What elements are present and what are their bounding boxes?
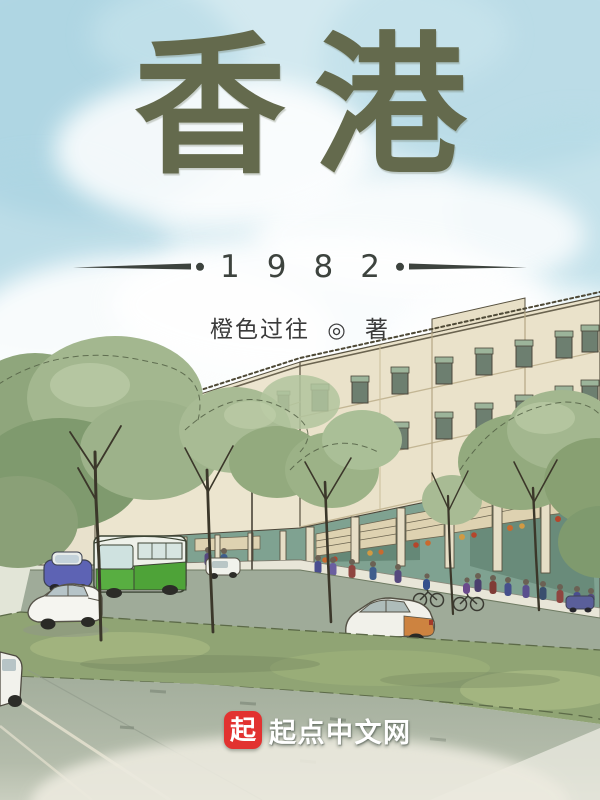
divider-left-icon	[73, 260, 207, 274]
author-separator-icon: ◎	[327, 319, 347, 342]
qidian-logo-icon: 起	[224, 711, 262, 749]
divider-right-icon	[393, 260, 527, 274]
green-bus	[94, 536, 186, 598]
book-year: 1982	[220, 249, 407, 285]
book-cover: 香港 1982 橙色过往 ◎ 著 起 起点中文网	[0, 0, 600, 800]
publisher-name: 起点中文网	[269, 711, 412, 750]
book-title: 香港	[0, 18, 600, 197]
author-byline: 橙色过往 ◎ 著	[0, 310, 600, 344]
author-name: 橙色过往	[210, 316, 310, 342]
year-row: 1982	[0, 248, 600, 286]
edge-car	[0, 652, 22, 707]
publisher-logo: 起 起点中文网	[224, 710, 412, 750]
qidian-logo-character: 起	[230, 711, 256, 749]
author-role: 著	[365, 316, 390, 342]
